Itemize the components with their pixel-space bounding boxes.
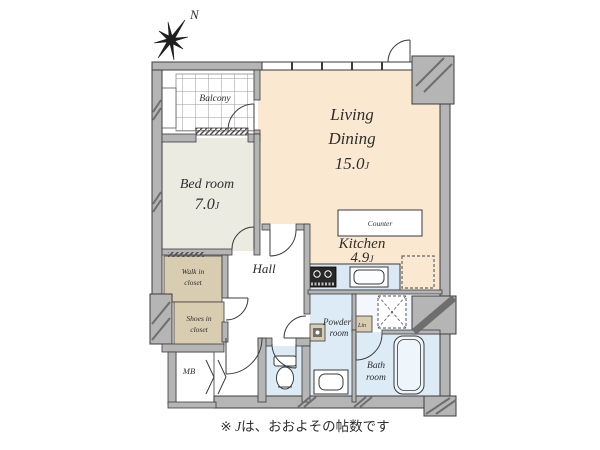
walk-in-closet-label: Walk in <box>182 267 205 276</box>
balcony-label: Balcony <box>199 94 231 104</box>
walk-in-closet-label2: closet <box>184 278 202 287</box>
shoes-closet-label2: closet <box>190 325 208 334</box>
counter-label: Counter <box>368 219 393 228</box>
balcony-partition-lower <box>254 130 260 134</box>
right-wall-lower <box>440 334 450 400</box>
washbasin-icon <box>314 370 348 394</box>
shoes-closet-label: Shoes in <box>186 314 211 323</box>
shoes-in-closet-floor <box>174 302 224 346</box>
bath-top-wall <box>382 330 440 334</box>
walk-in-closet-hanger-strip <box>168 252 204 257</box>
hall-top-wall-left <box>262 224 270 230</box>
bath-room-label2: room <box>366 373 386 383</box>
powder-room-label: Powder <box>322 317 351 327</box>
mb-left-wall <box>168 352 176 404</box>
bed-room-floor <box>162 138 254 251</box>
compass-north-label: N <box>189 7 200 22</box>
left-wall <box>152 62 162 294</box>
top-right-pillar <box>412 56 454 104</box>
hall-label: Hall <box>251 261 276 276</box>
bathtub-icon <box>394 336 424 394</box>
powder-room-label2: room <box>330 328 349 338</box>
floor-plan-canvas: N <box>0 0 600 450</box>
bedroom-right-wall <box>254 134 260 255</box>
window-band <box>262 62 412 70</box>
balcony-window-sill <box>196 128 248 135</box>
bed-room-label: Bed room <box>180 177 234 192</box>
footer-note: ※ Jは、おおよその帖数です <box>220 419 389 434</box>
toilet-right-wall <box>302 346 310 402</box>
closet-bottom-wall <box>162 344 224 352</box>
compass-star-icon <box>154 20 188 60</box>
balcony-side-step <box>162 88 176 128</box>
hall-right-wall <box>304 224 310 314</box>
meter-box-label: MB <box>182 366 195 376</box>
right-wall-upper <box>440 104 450 296</box>
kitchen-bottom-wall <box>308 290 442 294</box>
laundry-machine-space <box>378 296 406 328</box>
bath-left-wall <box>352 330 356 402</box>
bedroom-top-wall-left <box>162 134 196 142</box>
kitchen-sink-basin-icon <box>354 270 384 284</box>
compass-rose: N <box>154 7 200 60</box>
hall-left-wall-lower <box>222 322 228 342</box>
toilet-top-wall-right <box>296 338 310 346</box>
floor-plan-page: N <box>0 0 600 450</box>
linen-label: Lin <box>357 323 366 329</box>
hall-left-wall-upper <box>222 255 228 298</box>
living-label: Living <box>329 105 373 124</box>
toilet-left-wall <box>258 338 266 402</box>
bath-room-label: Bath <box>367 361 385 371</box>
powder-laundry-wall <box>352 294 356 330</box>
top-right-door-icon <box>388 40 410 62</box>
dining-label: Dining <box>327 129 375 148</box>
bottom-wall <box>214 396 456 408</box>
mb-bottom-wall <box>168 402 216 408</box>
top-wall-balcony <box>152 62 262 70</box>
balcony-partition-upper <box>254 70 260 100</box>
